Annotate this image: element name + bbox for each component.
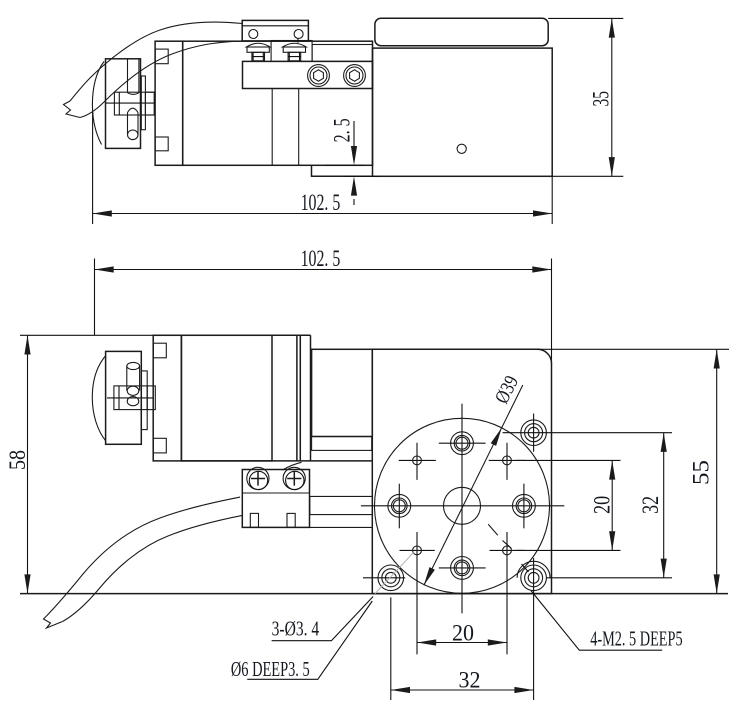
svg-text:32: 32	[459, 668, 481, 693]
svg-text:102. 5: 102. 5	[301, 246, 341, 271]
svg-text:35: 35	[589, 91, 614, 107]
svg-text:20: 20	[452, 621, 474, 646]
svg-text:Ø6 DEEP3. 5: Ø6 DEEP3. 5	[231, 657, 310, 681]
svg-text:58: 58	[5, 450, 30, 470]
svg-text:102. 5: 102. 5	[301, 190, 341, 215]
svg-text:2. 5: 2. 5	[330, 118, 355, 142]
svg-text:20: 20	[590, 496, 615, 514]
svg-text:55: 55	[688, 460, 713, 485]
svg-text:3-Ø3. 4: 3-Ø3. 4	[272, 617, 320, 641]
svg-text:4-M2. 5 DEEP5: 4-M2. 5 DEEP5	[590, 627, 682, 651]
svg-text:32: 32	[638, 496, 663, 514]
